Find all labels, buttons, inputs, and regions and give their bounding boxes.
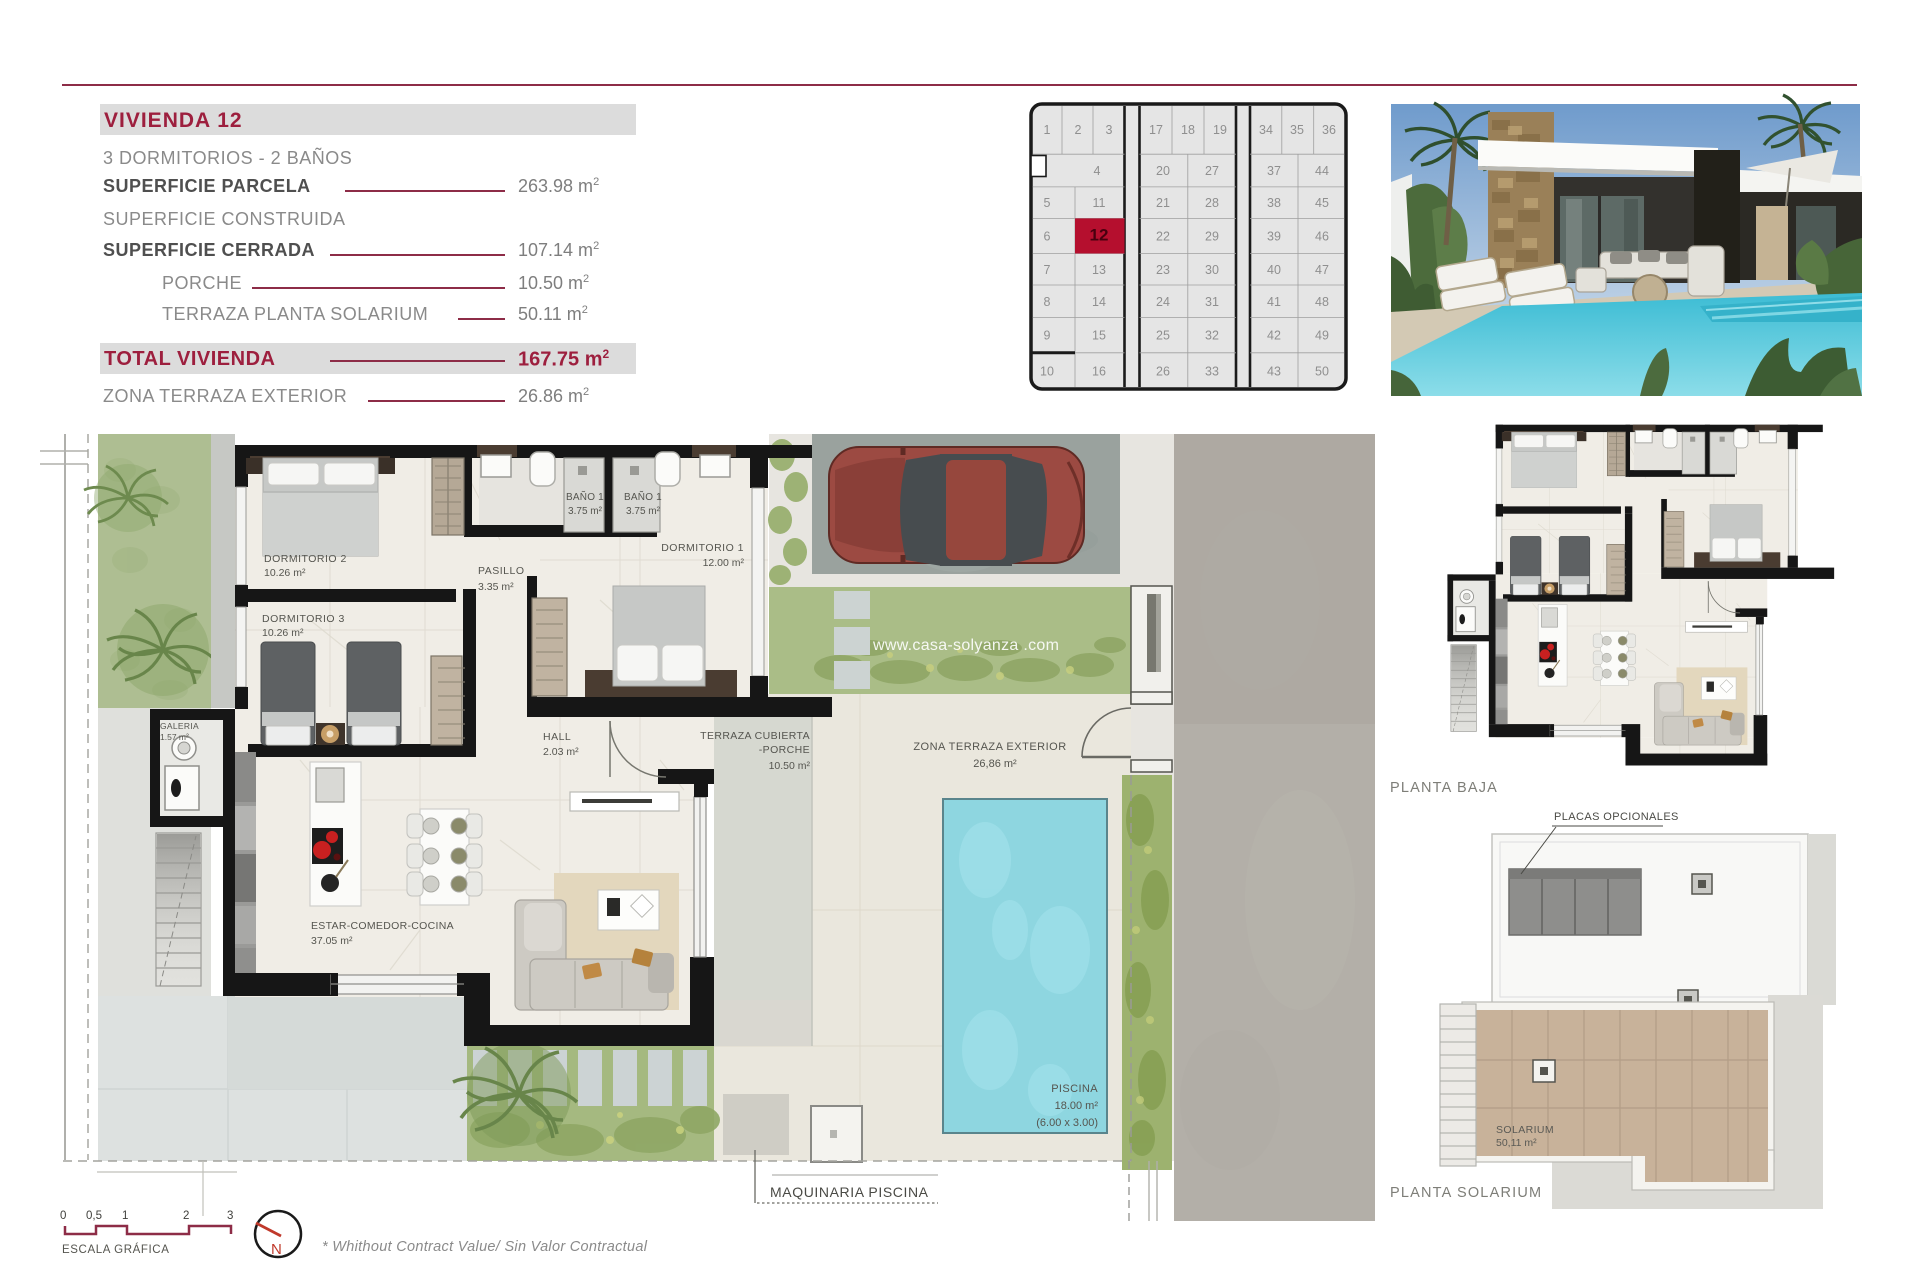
- svg-text:18: 18: [1181, 123, 1195, 137]
- svg-text:0,5: 0,5: [86, 1210, 102, 1222]
- svg-text:40: 40: [1267, 263, 1281, 277]
- svg-text:39: 39: [1267, 229, 1281, 243]
- svg-text:5: 5: [1044, 196, 1051, 210]
- svg-text:16: 16: [1092, 364, 1106, 378]
- svg-text:7: 7: [1044, 263, 1051, 277]
- svg-text:PLANTA SOLARIUM: PLANTA SOLARIUM: [1390, 1185, 1542, 1201]
- svg-text:PISCINA: PISCINA: [1051, 1083, 1098, 1095]
- svg-text:(6.00 x 3.00): (6.00 x 3.00): [1036, 1117, 1098, 1129]
- svg-text:26: 26: [1156, 364, 1170, 378]
- svg-text:24: 24: [1156, 295, 1170, 309]
- svg-text:1: 1: [122, 1210, 128, 1222]
- svg-text:11: 11: [1093, 196, 1106, 210]
- svg-text:48: 48: [1315, 295, 1329, 309]
- svg-text:1: 1: [1044, 123, 1051, 137]
- svg-text:0: 0: [60, 1210, 66, 1222]
- svg-text:PASILLO: PASILLO: [478, 565, 525, 577]
- svg-text:32: 32: [1205, 329, 1219, 343]
- svg-text:27: 27: [1205, 164, 1219, 178]
- svg-text:31: 31: [1205, 295, 1219, 309]
- svg-text:* Whithout Contract Value/ Si: * Whithout Contract Value/ Sin Valor Con…: [322, 1239, 648, 1255]
- svg-text:22: 22: [1156, 229, 1170, 243]
- svg-text:BAÑO 1: BAÑO 1: [566, 490, 604, 503]
- svg-text:19: 19: [1213, 123, 1227, 137]
- svg-text:10.50 m²: 10.50 m²: [769, 760, 811, 772]
- svg-text:28: 28: [1205, 196, 1219, 210]
- svg-text:20: 20: [1156, 164, 1170, 178]
- svg-text:47: 47: [1315, 263, 1329, 277]
- svg-text:MAQUINARIA PISCINA: MAQUINARIA PISCINA: [770, 1184, 929, 1200]
- svg-text:DORMITORIO 3: DORMITORIO 3: [262, 613, 345, 625]
- svg-text:12: 12: [1090, 225, 1109, 244]
- svg-text:49: 49: [1315, 329, 1329, 343]
- svg-text:ESCALA GRÁFICA: ESCALA GRÁFICA: [62, 1243, 169, 1256]
- svg-text:44: 44: [1315, 164, 1329, 178]
- svg-text:42: 42: [1267, 329, 1281, 343]
- svg-text:DORMITORIO 2: DORMITORIO 2: [264, 553, 347, 565]
- svg-text:ESTAR-COMEDOR-COCINA: ESTAR-COMEDOR-COCINA: [311, 920, 454, 932]
- svg-text:35: 35: [1290, 123, 1304, 137]
- svg-text:8: 8: [1044, 295, 1051, 309]
- svg-text:23: 23: [1156, 263, 1170, 277]
- svg-text:N: N: [271, 1241, 282, 1258]
- svg-text:BAÑO 1: BAÑO 1: [624, 490, 662, 503]
- svg-text:37: 37: [1267, 164, 1281, 178]
- svg-text:46: 46: [1315, 229, 1329, 243]
- svg-text:PLACAS OPCIONALES: PLACAS OPCIONALES: [1554, 811, 1679, 823]
- svg-text:6: 6: [1044, 229, 1051, 243]
- svg-text:37.05 m²: 37.05 m²: [311, 935, 353, 947]
- svg-text:10.26 m²: 10.26 m²: [262, 627, 304, 639]
- svg-text:10: 10: [1040, 364, 1054, 378]
- svg-text:25: 25: [1156, 329, 1170, 343]
- svg-text:3.75 m²: 3.75 m²: [626, 506, 661, 517]
- svg-text:30: 30: [1205, 263, 1219, 277]
- svg-text:www.casa-solyanza .com: www.casa-solyanza .com: [872, 637, 1059, 654]
- svg-text:45: 45: [1315, 196, 1329, 210]
- svg-text:18.00 m²: 18.00 m²: [1055, 1100, 1099, 1112]
- svg-text:TERRAZA CUBIERTA: TERRAZA CUBIERTA: [700, 730, 810, 742]
- svg-text:ZONA TERRAZA EXTERIOR: ZONA TERRAZA EXTERIOR: [913, 741, 1066, 753]
- svg-text:SOLARIUM: SOLARIUM: [1496, 1124, 1554, 1136]
- svg-text:21: 21: [1156, 196, 1170, 210]
- svg-text:-PORCHE: -PORCHE: [759, 744, 810, 756]
- svg-text:17: 17: [1149, 123, 1163, 137]
- svg-text:50,11 m²: 50,11 m²: [1496, 1137, 1537, 1149]
- svg-text:3.75 m²: 3.75 m²: [568, 506, 603, 517]
- svg-text:3: 3: [227, 1210, 233, 1222]
- svg-text:33: 33: [1205, 364, 1219, 378]
- svg-text:2: 2: [183, 1210, 189, 1222]
- svg-text:14: 14: [1092, 295, 1106, 309]
- svg-text:1.57 m²: 1.57 m²: [160, 732, 189, 742]
- svg-text:2: 2: [1075, 123, 1082, 137]
- svg-text:38: 38: [1267, 196, 1281, 210]
- svg-text:9: 9: [1044, 329, 1051, 343]
- svg-text:41: 41: [1267, 295, 1281, 309]
- svg-text:13: 13: [1092, 263, 1106, 277]
- svg-text:4: 4: [1094, 164, 1101, 178]
- svg-text:34: 34: [1259, 123, 1273, 137]
- svg-text:GALERIA: GALERIA: [160, 721, 199, 731]
- svg-text:HALL: HALL: [543, 731, 571, 743]
- svg-text:DORMITORIO 1: DORMITORIO 1: [661, 542, 744, 554]
- svg-text:3.35 m²: 3.35 m²: [478, 581, 514, 593]
- svg-text:PLANTA BAJA: PLANTA BAJA: [1390, 780, 1498, 796]
- svg-text:10.26 m²: 10.26 m²: [264, 567, 306, 579]
- svg-text:12.00 m²: 12.00 m²: [703, 557, 745, 569]
- svg-text:15: 15: [1092, 329, 1106, 343]
- svg-text:29: 29: [1205, 229, 1219, 243]
- svg-text:3: 3: [1106, 123, 1113, 137]
- svg-text:43: 43: [1267, 364, 1281, 378]
- svg-text:2.03 m²: 2.03 m²: [543, 746, 579, 758]
- svg-text:36: 36: [1322, 123, 1336, 137]
- svg-text:26,86 m²: 26,86 m²: [973, 758, 1017, 770]
- svg-text:50: 50: [1315, 364, 1329, 378]
